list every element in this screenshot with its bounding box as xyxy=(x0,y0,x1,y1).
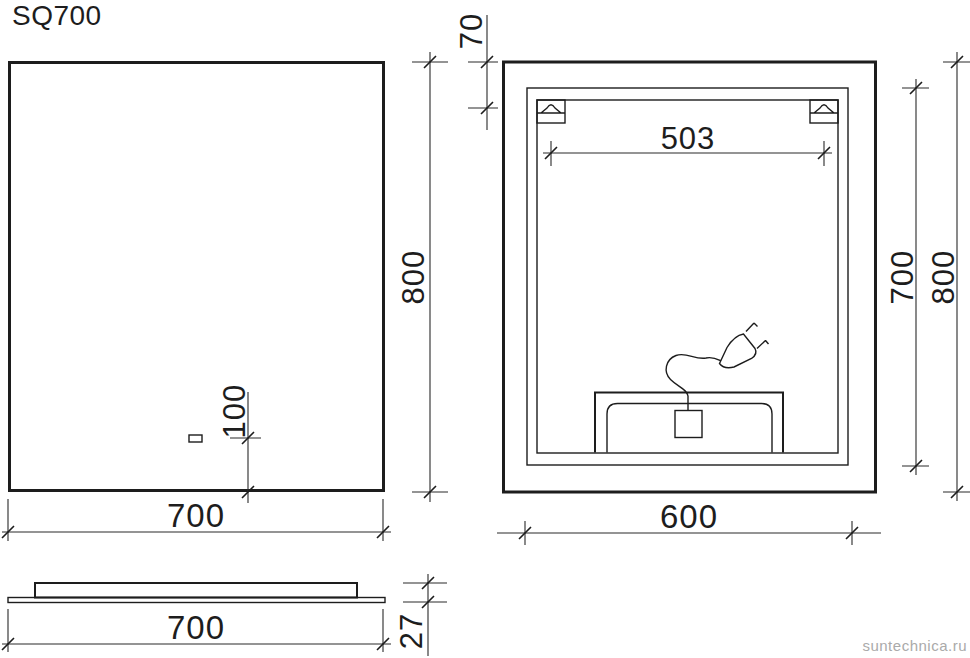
front-view-outline xyxy=(10,63,384,491)
model-title: SQ700 xyxy=(12,0,102,31)
dim-label-27: 27 xyxy=(394,613,429,649)
driver-box xyxy=(595,393,783,453)
front-view: 100 800 700 xyxy=(2,52,448,541)
dim-sensor-offset: 100 xyxy=(217,384,261,503)
dim-label-600: 600 xyxy=(660,498,718,535)
watermark: suntechnica.ru xyxy=(862,637,967,654)
technical-drawing-canvas: SQ700 100 800 700 700 xyxy=(0,0,970,658)
dim-label-700-side: 700 xyxy=(167,609,225,646)
side-view: 700 27 xyxy=(2,574,447,656)
drawing-svg: SQ700 100 800 700 700 xyxy=(0,0,970,658)
driver-box-outer xyxy=(595,393,783,453)
dim-back-height: 800 xyxy=(926,52,970,501)
dim-back-width: 600 xyxy=(497,498,881,545)
dim-front-width: 700 xyxy=(2,497,391,541)
dim-label-800-front: 800 xyxy=(396,250,431,305)
power-cord xyxy=(666,354,721,410)
dim-label-700-back: 700 xyxy=(885,250,920,305)
dim-back-visible-height: 700 xyxy=(885,79,929,475)
dim-side-thickness: 27 xyxy=(394,574,447,656)
dim-side-width: 700 xyxy=(2,609,391,652)
dim-label-800-back: 800 xyxy=(926,250,961,305)
dim-label-100: 100 xyxy=(217,384,252,439)
dim-label-700-front: 700 xyxy=(167,497,225,534)
dim-label-70: 70 xyxy=(454,13,489,49)
dim-bracket-top-offset: 70 xyxy=(454,13,498,130)
side-view-body xyxy=(35,583,357,598)
left-mounting-bracket-icon xyxy=(537,100,565,123)
back-view: 503 70 600 700 xyxy=(454,13,970,545)
dim-bracket-spacing: 503 xyxy=(543,121,832,166)
junction-box xyxy=(675,411,702,438)
touch-sensor-mark xyxy=(189,435,202,442)
power-plug-icon xyxy=(720,323,769,368)
dim-label-503: 503 xyxy=(661,121,716,156)
dim-front-height: 800 xyxy=(396,52,448,502)
right-mounting-bracket-icon xyxy=(810,100,838,123)
